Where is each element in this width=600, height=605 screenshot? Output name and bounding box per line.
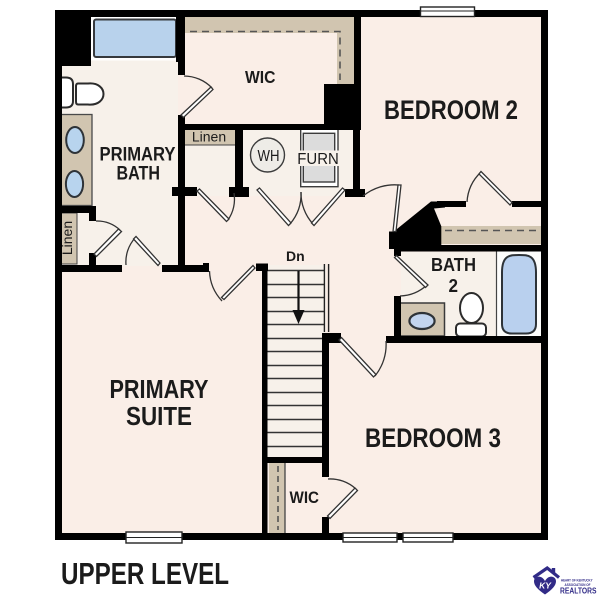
- svg-text:Dn: Dn: [286, 248, 305, 264]
- svg-text:BATH: BATH: [117, 163, 161, 185]
- svg-text:KY: KY: [539, 581, 552, 591]
- svg-text:WIC: WIC: [245, 67, 276, 87]
- svg-text:BEDROOM 2: BEDROOM 2: [384, 95, 518, 125]
- svg-text:PRIMARY: PRIMARY: [110, 376, 209, 404]
- svg-text:UPPER LEVEL: UPPER LEVEL: [61, 556, 229, 591]
- svg-text:Linen: Linen: [192, 129, 226, 145]
- svg-text:WH: WH: [258, 148, 280, 165]
- svg-text:REALTORS: REALTORS: [560, 585, 597, 595]
- svg-text:FURN: FURN: [297, 151, 339, 168]
- svg-text:BEDROOM 3: BEDROOM 3: [365, 423, 501, 453]
- svg-text:SUITE: SUITE: [126, 403, 192, 431]
- svg-text:WIC: WIC: [290, 489, 320, 507]
- svg-text:2: 2: [449, 276, 459, 296]
- svg-text:BATH: BATH: [431, 255, 476, 275]
